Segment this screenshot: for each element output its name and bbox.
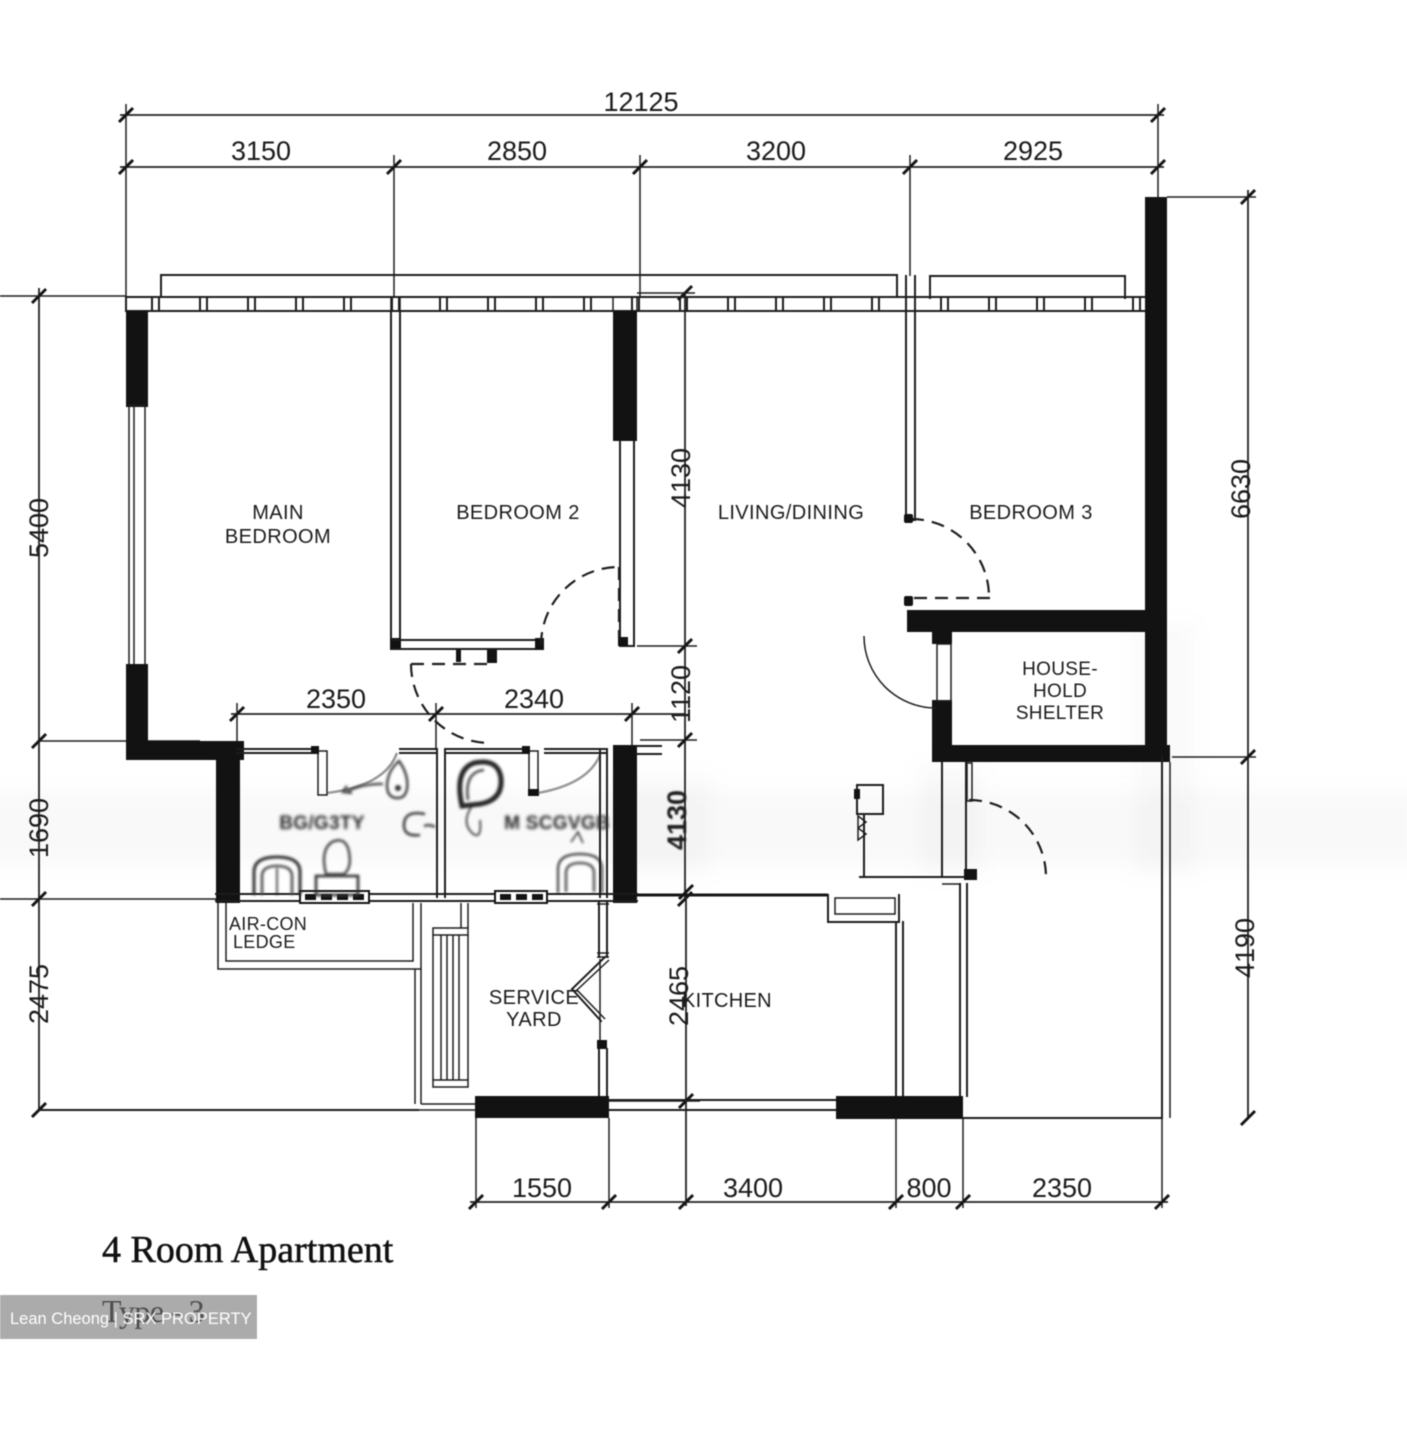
svg-text:5400: 5400 <box>24 498 54 558</box>
svg-text:AIR-CON: AIR-CON <box>229 914 307 934</box>
svg-text:BEDROOM 3: BEDROOM 3 <box>969 502 1093 524</box>
svg-text:4190: 4190 <box>1230 918 1260 978</box>
svg-text:BEDROOM 2: BEDROOM 2 <box>456 502 580 524</box>
svg-text:12125: 12125 <box>603 87 678 117</box>
svg-text:4 Room Apartment: 4 Room Apartment <box>102 1229 394 1271</box>
svg-text:MAIN: MAIN <box>252 502 304 524</box>
svg-text:M SCGVGB: M SCGVGB <box>504 813 610 834</box>
svg-text:LEDGE: LEDGE <box>233 932 296 952</box>
svg-text:KITCHEN: KITCHEN <box>682 990 772 1012</box>
svg-text:YARD: YARD <box>506 1009 562 1031</box>
svg-text:1550: 1550 <box>512 1173 572 1203</box>
svg-text:2925: 2925 <box>1003 136 1063 166</box>
svg-text:HOLD: HOLD <box>1033 681 1087 702</box>
svg-text:800: 800 <box>906 1173 951 1203</box>
svg-text:Lean Cheong | SRX PROPERTY: Lean Cheong | SRX PROPERTY <box>10 1310 252 1328</box>
svg-text:2475: 2475 <box>24 964 54 1024</box>
svg-text:4130: 4130 <box>666 448 696 508</box>
svg-text:4130: 4130 <box>662 790 692 850</box>
svg-text:3400: 3400 <box>723 1173 783 1203</box>
svg-text:SHELTER: SHELTER <box>1016 703 1104 724</box>
svg-text:1690: 1690 <box>24 798 54 858</box>
svg-text:6630: 6630 <box>1226 459 1256 519</box>
svg-text:2340: 2340 <box>504 684 564 714</box>
svg-text:2350: 2350 <box>1032 1173 1092 1203</box>
svg-text:LIVING/DINING: LIVING/DINING <box>718 502 864 524</box>
svg-text:BEDROOM: BEDROOM <box>225 526 331 548</box>
svg-text:3200: 3200 <box>746 136 806 166</box>
svg-text:BG/G3TY: BG/G3TY <box>279 813 365 834</box>
svg-text:SERVICE: SERVICE <box>489 987 579 1009</box>
svg-text:2850: 2850 <box>487 136 547 166</box>
svg-text:3150: 3150 <box>231 136 291 166</box>
svg-text:HOUSE-: HOUSE- <box>1022 659 1098 680</box>
svg-text:2350: 2350 <box>306 684 366 714</box>
